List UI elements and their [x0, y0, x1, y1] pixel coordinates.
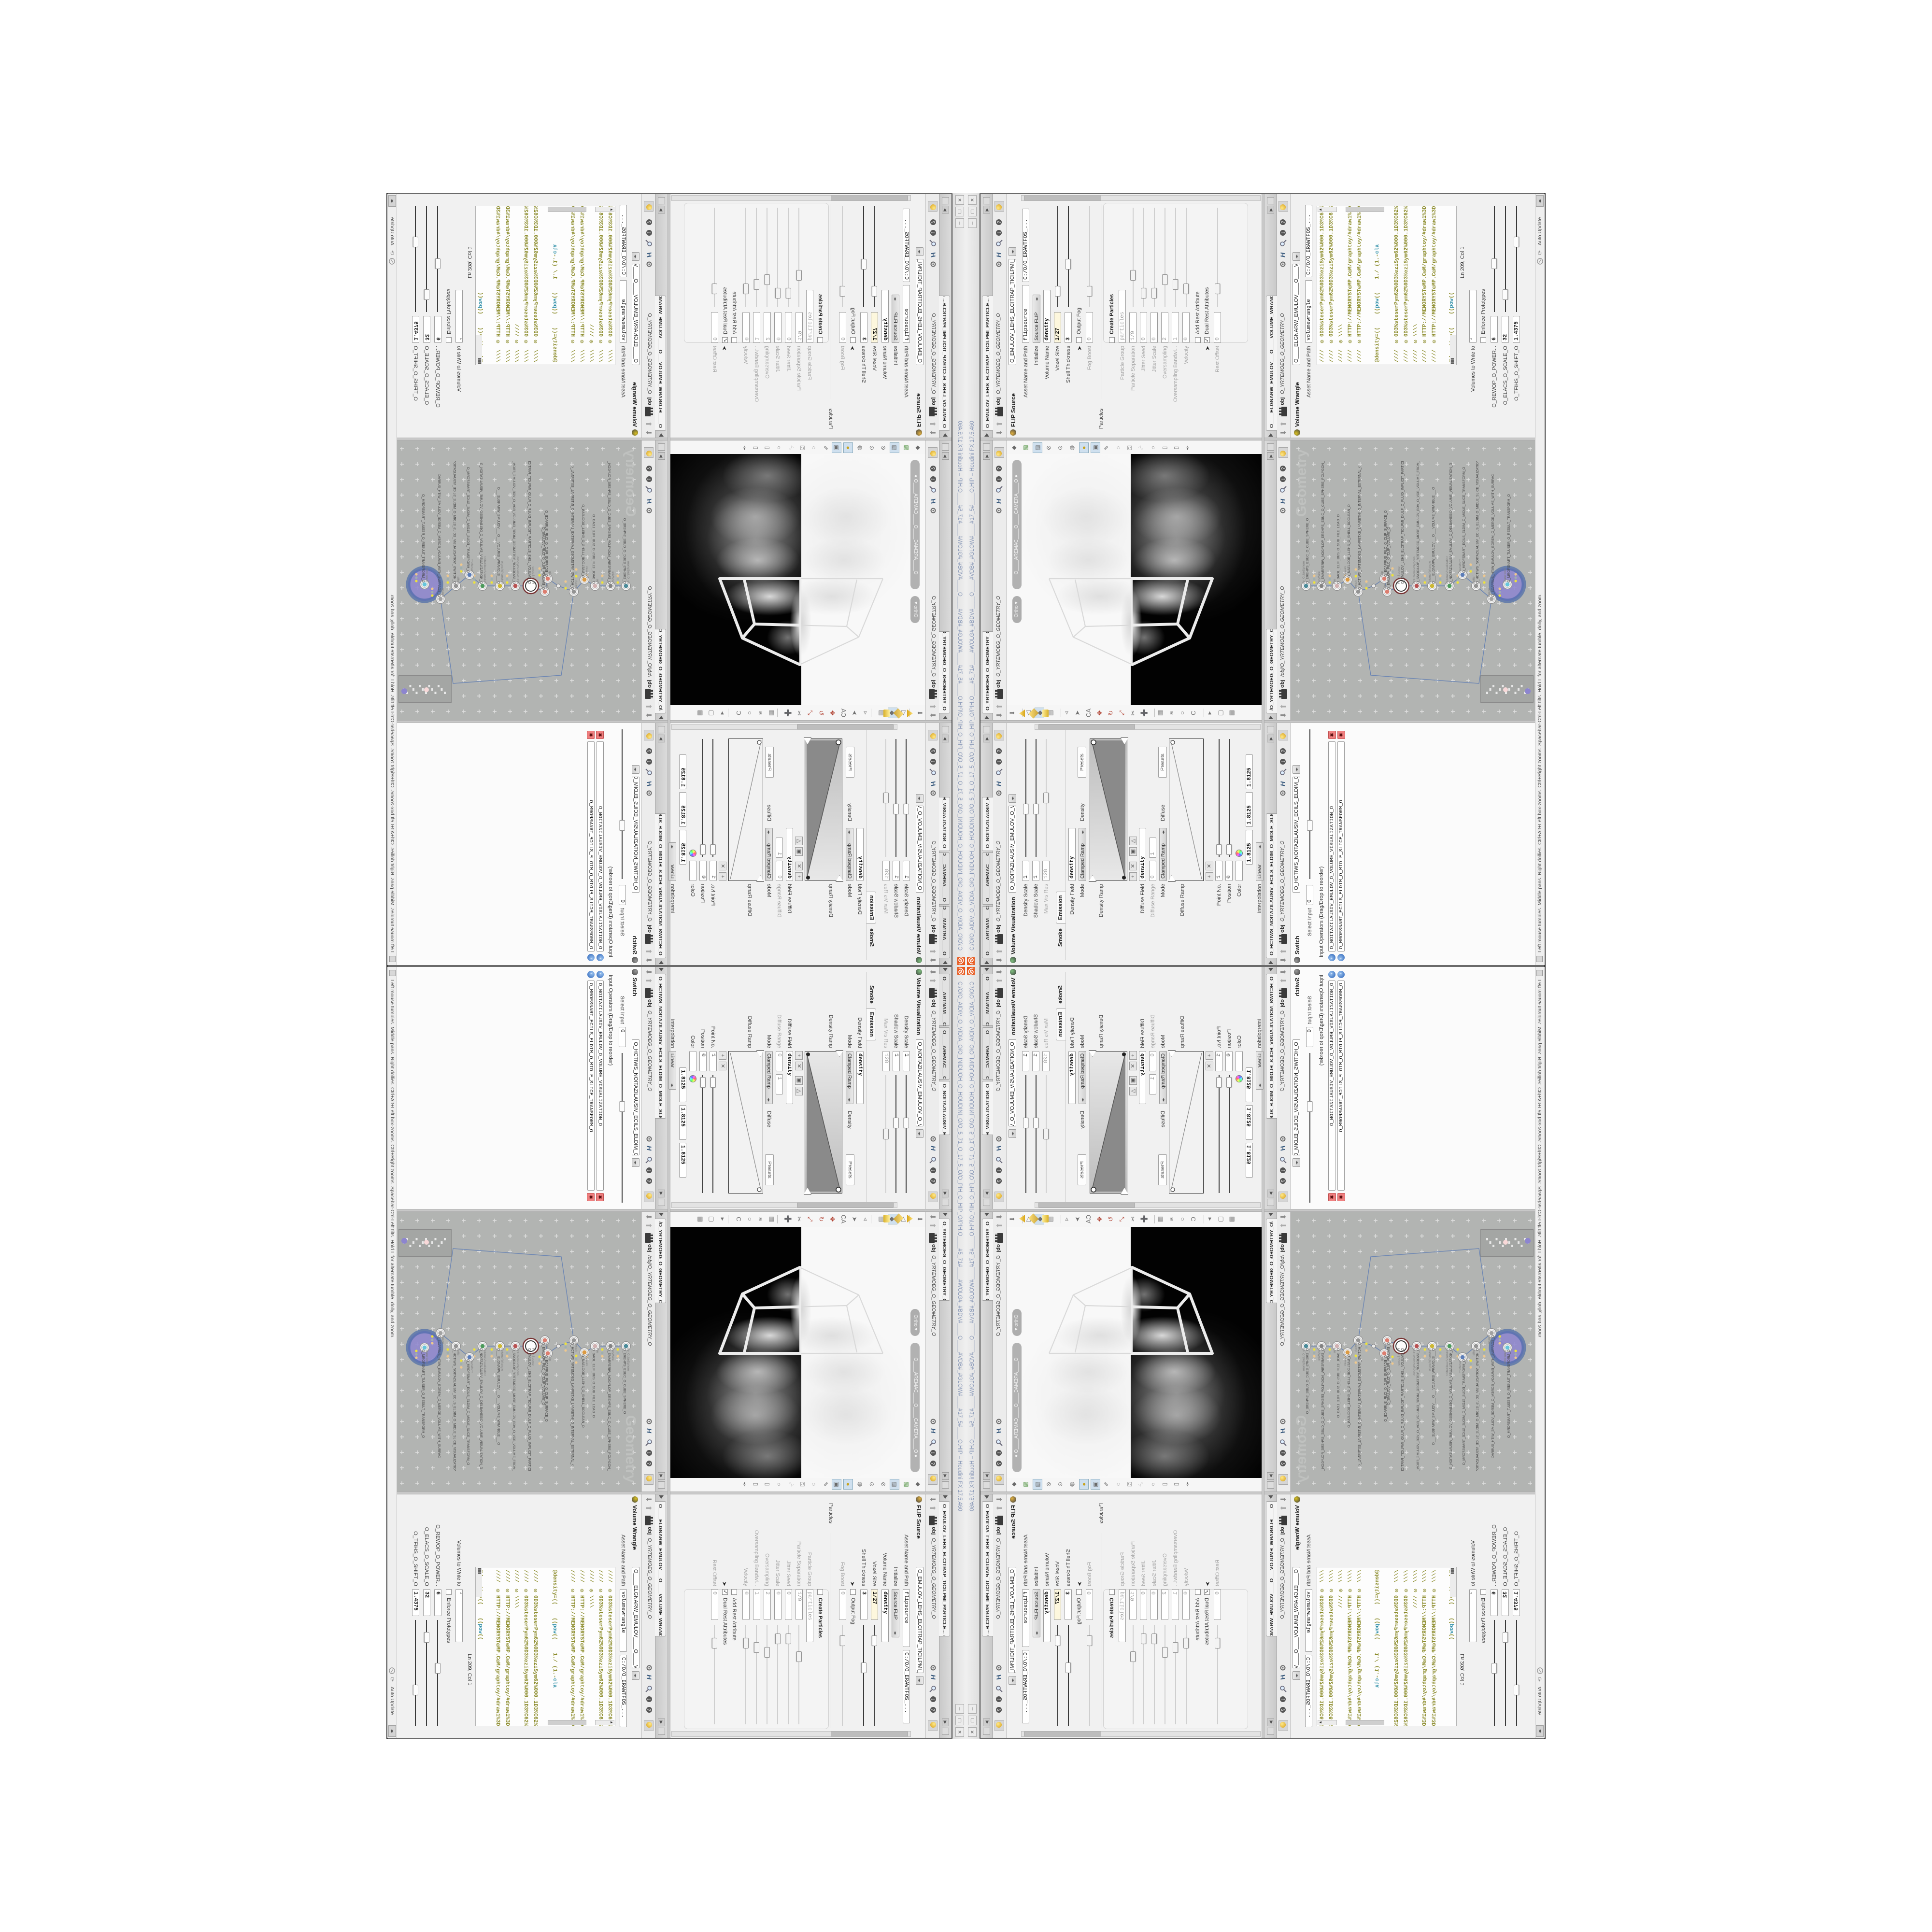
svg-text:?: ?	[1281, 1179, 1286, 1182]
svg-text:i: i	[646, 761, 651, 762]
svg-text:?: ?	[1281, 750, 1286, 753]
svg-text:i: i	[646, 1699, 651, 1700]
svg-text:i: i	[1281, 232, 1286, 233]
svg-text:i: i	[1281, 1699, 1286, 1700]
svg-text:i: i	[646, 1170, 651, 1171]
svg-text:?: ?	[997, 1708, 1002, 1711]
svg-text:i: i	[930, 1699, 935, 1700]
svg-text:?: ?	[1281, 1708, 1286, 1711]
svg-text:?: ?	[646, 221, 651, 224]
svg-text:?: ?	[646, 1179, 651, 1182]
svg-text:i: i	[1281, 761, 1286, 762]
svg-text:i: i	[997, 232, 1002, 233]
svg-text:?: ?	[646, 1708, 651, 1711]
svg-text:?: ?	[997, 221, 1002, 224]
svg-text:?: ?	[930, 221, 935, 224]
svg-text:?: ?	[1281, 221, 1286, 224]
svg-text:i: i	[930, 232, 935, 233]
svg-text:?: ?	[930, 1708, 935, 1711]
svg-text:i: i	[997, 1699, 1002, 1700]
svg-text:i: i	[1281, 1170, 1286, 1171]
svg-text:?: ?	[646, 750, 651, 753]
svg-text:i: i	[646, 232, 651, 233]
